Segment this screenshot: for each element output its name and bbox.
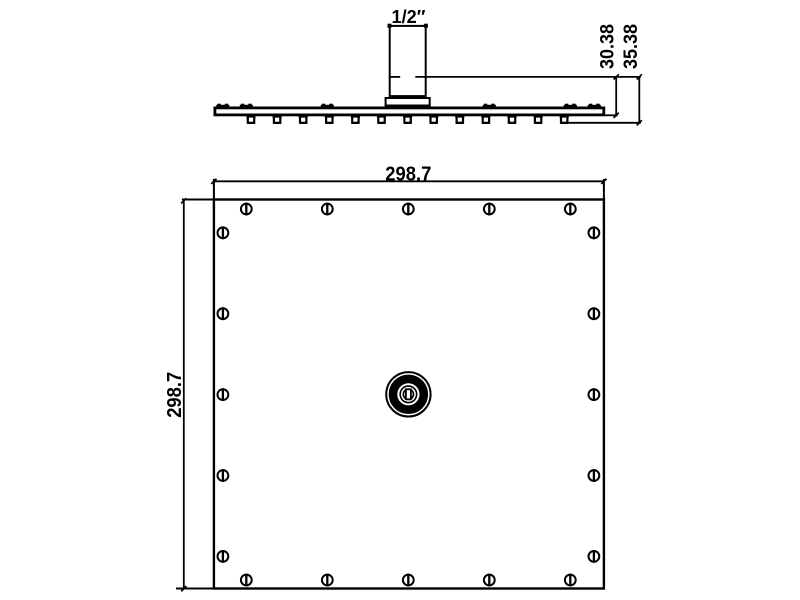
svg-text:35.38: 35.38 <box>621 24 642 69</box>
svg-text:298.7: 298.7 <box>164 372 186 418</box>
svg-text:298.7: 298.7 <box>385 163 431 185</box>
svg-text:1/2″: 1/2″ <box>392 7 426 27</box>
svg-text:30.38: 30.38 <box>598 24 619 69</box>
